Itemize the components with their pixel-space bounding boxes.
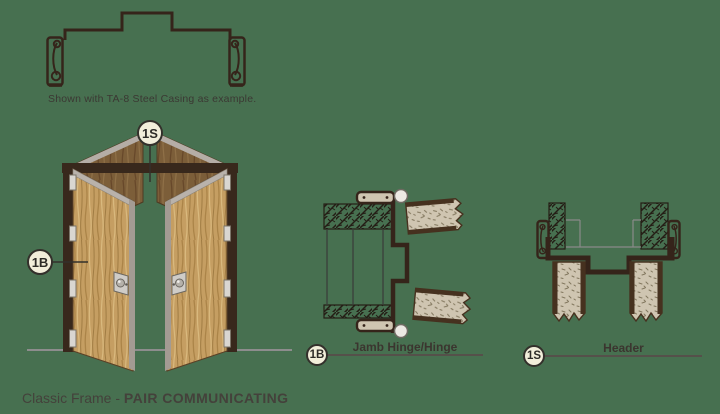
wall-stud-lines — [327, 229, 383, 305]
door-section-bottom — [413, 288, 471, 324]
front-door-right — [165, 169, 231, 371]
wall-section-hatch — [641, 203, 668, 249]
diagram-page: Shown with TA-8 Steel Casing as example.… — [0, 0, 720, 414]
front-door-left — [70, 169, 136, 371]
jamb-detail-label: Jamb Hinge/Hinge — [327, 340, 483, 354]
jamb-frame-profile — [393, 193, 407, 333]
frame-throat-lines — [566, 220, 641, 247]
title-prefix: Classic Frame - — [22, 390, 120, 406]
header-detail-label: Header — [545, 341, 702, 355]
frame-anchor — [357, 320, 394, 331]
door-section-right — [630, 262, 662, 321]
callout-1s-door: 1S — [137, 120, 163, 146]
door-section-top — [406, 198, 464, 234]
casing-profile-diagram — [48, 13, 245, 86]
page-title: Classic Frame - PAIR COMMUNICATING — [22, 390, 288, 406]
wall-section-hatch — [324, 305, 392, 318]
lock-hardware — [172, 272, 186, 295]
jamb-detail-drawing — [324, 190, 472, 338]
wall-section-hatch — [549, 203, 565, 249]
lock-hardware — [114, 272, 128, 295]
frame-anchor — [357, 192, 394, 203]
wall-section-hatch — [324, 204, 392, 229]
callout-1b-door: 1B — [27, 249, 53, 275]
header-detail-drawing — [538, 203, 680, 321]
title-emphasis: PAIR COMMUNICATING — [124, 390, 289, 406]
callout-1s-detail: 1S — [523, 345, 545, 367]
door-illustration — [27, 133, 292, 371]
hinge-pin — [395, 325, 408, 338]
hinge-pin — [395, 190, 408, 203]
door-section-left — [553, 262, 585, 321]
callout-1b-detail: 1B — [306, 344, 328, 366]
casing-note: Shown with TA-8 Steel Casing as example. — [48, 93, 256, 105]
